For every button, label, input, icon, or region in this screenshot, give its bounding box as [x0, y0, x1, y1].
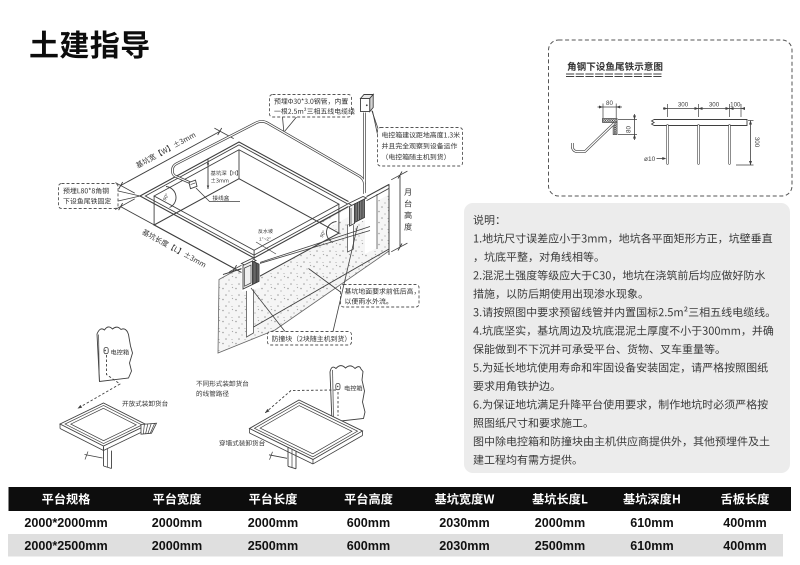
svg-text:2000mm: 2000mm — [248, 516, 298, 530]
svg-text:610mm: 610mm — [630, 516, 673, 530]
svg-text:2030mm: 2030mm — [439, 516, 489, 530]
svg-text:2000mm: 2000mm — [535, 516, 585, 530]
svg-text:610mm: 610mm — [630, 539, 673, 553]
svg-text:1°~2°: 1°~2° — [259, 237, 271, 243]
svg-text:2000mm: 2000mm — [152, 539, 202, 553]
svg-text:2000*2500mm: 2000*2500mm — [24, 539, 107, 553]
svg-text:ø10: ø10 — [644, 156, 656, 163]
svg-text:300: 300 — [709, 101, 720, 108]
svg-text:300: 300 — [678, 101, 689, 108]
svg-text:400mm: 400mm — [723, 516, 766, 530]
svg-text:2000mm: 2000mm — [152, 516, 202, 530]
svg-text:2500mm: 2500mm — [248, 539, 298, 553]
svg-text:2000*2000mm: 2000*2000mm — [24, 516, 107, 530]
svg-text:300: 300 — [753, 137, 760, 148]
svg-text:600mm: 600mm — [347, 539, 390, 553]
svg-text:2030mm: 2030mm — [439, 539, 489, 553]
svg-text:100: 100 — [730, 101, 741, 108]
svg-text:600mm: 600mm — [347, 516, 390, 530]
svg-text:80: 80 — [606, 100, 613, 107]
svg-text:80: 80 — [626, 126, 633, 133]
svg-text:2500mm: 2500mm — [535, 539, 585, 553]
svg-text:400mm: 400mm — [723, 539, 766, 553]
